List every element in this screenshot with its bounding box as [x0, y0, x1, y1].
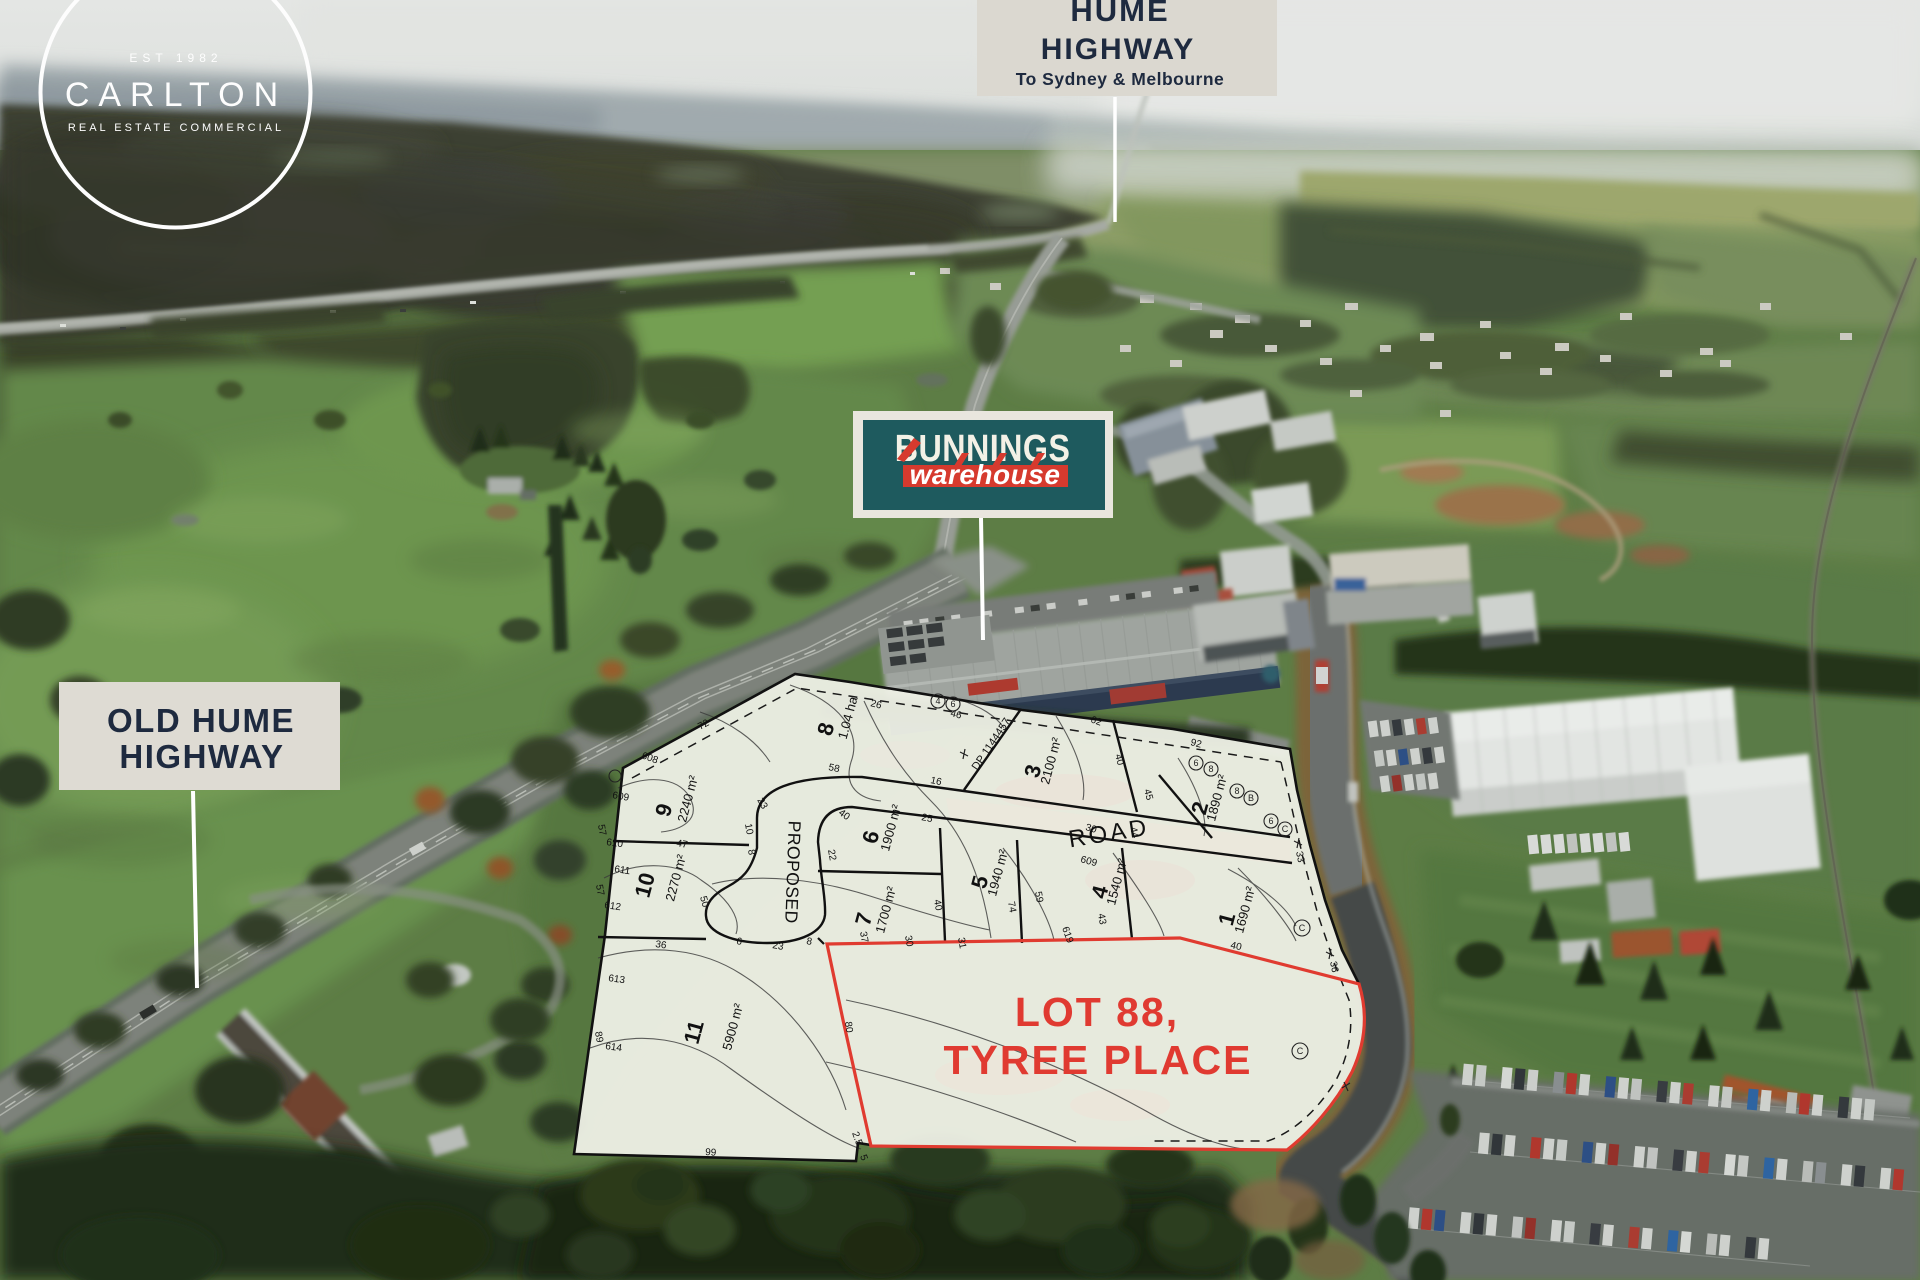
svg-text:HIGHWAY: HIGHWAY: [1041, 33, 1196, 66]
svg-text:6: 6: [1193, 758, 1198, 768]
svg-text:To Sydney & Melbourne: To Sydney & Melbourne: [1016, 69, 1225, 89]
svg-text:4: 4: [935, 696, 940, 706]
svg-text:HUME: HUME: [1070, 0, 1169, 28]
svg-text:C: C: [1282, 824, 1289, 834]
svg-text:C: C: [1299, 923, 1306, 933]
svg-text:EST 1982: EST 1982: [129, 51, 222, 65]
svg-text:6: 6: [950, 699, 955, 709]
svg-text:B: B: [1248, 793, 1254, 803]
svg-text:CARLTON: CARLTON: [65, 76, 287, 114]
svg-text:warehouse: warehouse: [910, 459, 1061, 490]
svg-text:8: 8: [1234, 786, 1239, 796]
svg-text:8: 8: [1208, 764, 1213, 774]
svg-text:LOT 88,: LOT 88,: [1015, 989, 1179, 1035]
svg-text:36: 36: [655, 939, 668, 952]
svg-text:6: 6: [1268, 816, 1273, 826]
svg-text:HIGHWAY: HIGHWAY: [119, 738, 284, 775]
svg-text:611: 611: [614, 864, 632, 877]
svg-text:OLD HUME: OLD HUME: [107, 702, 295, 739]
svg-text:99: 99: [705, 1147, 717, 1159]
svg-text:PROPOSED: PROPOSED: [781, 820, 805, 924]
svg-text:80: 80: [842, 1021, 855, 1034]
svg-text:C: C: [1297, 1046, 1304, 1056]
svg-text:TYREE PLACE: TYREE PLACE: [943, 1037, 1252, 1083]
svg-text:REAL ESTATE COMMERCIAL: REAL ESTATE COMMERCIAL: [68, 122, 284, 134]
